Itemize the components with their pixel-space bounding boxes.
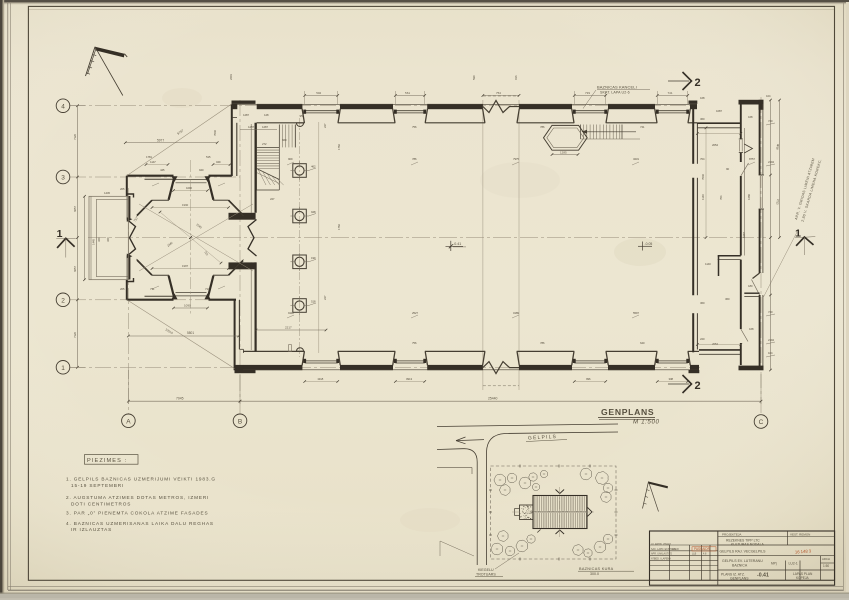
svg-text:5597: 5597 [633,311,639,315]
svg-text:740: 740 [768,310,773,314]
svg-text:PIEZIMES :: PIEZIMES : [87,458,127,464]
svg-text:SKAT. LAPA U2-6: SKAT. LAPA U2-6 [600,91,630,95]
svg-text:VEST. REMON: VEST. REMON [790,532,810,536]
svg-text:1287: 1287 [262,125,268,129]
svg-text:227: 227 [270,197,275,201]
svg-text:1987: 1987 [182,264,189,268]
svg-text:2054: 2054 [712,143,718,147]
svg-text:360: 360 [725,297,730,301]
svg-text:462: 462 [311,165,316,169]
svg-text:8757: 8757 [749,157,755,161]
svg-text:-0.05: -0.05 [645,242,653,246]
svg-text:MP): MP) [771,562,777,566]
svg-text:180: 180 [748,284,753,288]
svg-text:2601: 2601 [229,74,233,80]
svg-text:1680: 1680 [747,194,751,200]
svg-text:1318: 1318 [317,377,323,381]
svg-text:713: 713 [205,287,210,291]
svg-text:KIEGELU: KIEGELU [478,568,494,572]
svg-text:1782: 1782 [337,144,341,150]
svg-text:6057: 6057 [73,206,77,212]
svg-text:BAZNICAS KANCELI: BAZNICAS KANCELI [597,85,637,90]
svg-text:754: 754 [496,91,501,95]
svg-text:360: 360 [700,117,705,121]
svg-text:1087: 1087 [716,109,722,113]
svg-text:-0.41: -0.41 [757,573,769,579]
svg-text:BAZNICA: BAZNICA [732,563,748,567]
svg-text:1782: 1782 [337,224,341,230]
svg-text:BAZNICAS KURA: BAZNICAS KURA [579,567,614,571]
svg-text:5977: 5977 [157,139,164,143]
svg-text:1140: 1140 [705,262,711,266]
svg-text:996: 996 [586,377,591,381]
svg-text:GENPLANS: GENPLANS [601,407,654,417]
svg-text:756: 756 [412,341,417,345]
svg-text:LLB: LLB [692,553,697,556]
svg-text:3. PAR „0” PIENEMTA COKOLA ATZ: 3. PAR „0” PIENEMTA COKOLA ATZIME FASADE… [66,511,208,516]
svg-text:786: 786 [540,341,545,345]
svg-text:227: 227 [323,295,327,300]
svg-text:3231: 3231 [633,157,639,161]
svg-text:ARCH: ARCH [822,557,830,561]
svg-text:1:50: 1:50 [823,564,829,568]
svg-text:1287: 1287 [243,113,249,117]
svg-text:786: 786 [412,157,417,161]
svg-text:016: 016 [514,75,518,80]
svg-text:561: 561 [405,91,410,95]
svg-text:M 1:500: M 1:500 [633,419,660,426]
svg-text:518: 518 [311,300,316,304]
svg-text:4. BAZNICAS UZMERISANAS LAIKA: 4. BAZNICAS UZMERISANAS LAIKA DALU REGHA… [66,521,214,526]
svg-text:GELPILS EV. LUTERANU: GELPILS EV. LUTERANU [722,559,763,563]
svg-text:LV. ARHIV. ZINAM: LV. ARHIV. ZINAM [651,543,671,546]
svg-text:168: 168 [700,96,705,100]
svg-text:TROTUARS: TROTUARS [476,573,496,577]
svg-text:2527: 2527 [412,311,418,315]
svg-text:168: 168 [748,115,753,119]
svg-text:5801: 5801 [187,331,194,335]
svg-text:1. GELPILS BAZNICAS UZMERIJUMI: 1. GELPILS BAZNICAS UZMERIJUMI VEIKTI 19… [66,477,216,482]
svg-text:199: 199 [311,256,316,260]
svg-text:360: 360 [700,301,705,305]
svg-text:C: C [759,419,764,426]
svg-text:704: 704 [700,157,705,161]
svg-text:3: 3 [61,175,65,182]
svg-text:7040: 7040 [213,130,217,136]
svg-text:2: 2 [694,77,700,89]
svg-text:KOPEJA: KOPEJA [796,576,809,580]
svg-text:7045: 7045 [176,397,184,401]
svg-text:756: 756 [412,125,417,129]
svg-text:7120: 7120 [73,134,77,140]
svg-text:6057: 6057 [73,266,77,272]
svg-text:445: 445 [160,168,165,172]
svg-text:308: 308 [669,377,674,381]
svg-text:1445: 1445 [104,191,110,195]
svg-text:049: 049 [216,160,221,164]
svg-text:LU2-1: LU2-1 [789,562,798,566]
svg-text:2: 2 [694,380,700,392]
svg-text:1090: 1090 [184,304,191,308]
svg-text:227: 227 [323,123,327,128]
svg-text:DOTI CENTIMETROS: DOTI CENTIMETROS [71,501,131,506]
svg-text:A: A [126,418,131,425]
svg-text:741: 741 [640,125,645,129]
svg-text:2217: 2217 [285,326,292,330]
svg-text:1781: 1781 [146,155,152,159]
svg-text:1285: 1285 [560,151,567,155]
svg-text:2194: 2194 [768,160,774,164]
svg-text:1140: 1140 [701,194,705,200]
svg-text:-0.41: -0.41 [453,242,461,246]
svg-text:740: 740 [768,119,773,123]
svg-text:128: 128 [264,113,269,117]
svg-text:739: 739 [585,91,590,95]
svg-text:CAUR: CAUR [672,548,679,551]
svg-text:104: 104 [766,94,771,98]
svg-text:205: 205 [120,287,125,291]
svg-text:104: 104 [768,351,773,355]
svg-text:1090: 1090 [186,186,192,190]
svg-text:948: 948 [311,210,316,214]
svg-text:2194: 2194 [768,338,774,342]
svg-text:4: 4 [61,103,65,110]
svg-text:640: 640 [640,341,645,345]
svg-text:704: 704 [719,195,723,200]
svg-text:1445: 1445 [92,239,96,245]
svg-text:660: 660 [282,138,287,142]
svg-text:KULTURAS NODALA: KULTURAS NODALA [731,542,764,546]
svg-text:360: 360 [106,237,110,242]
svg-text:ATBED. I.LAPENA: ATBED. I.LAPENA [651,558,671,561]
svg-text:25440: 25440 [488,397,498,401]
svg-text:2: 2 [61,297,65,304]
svg-text:IR IZLAUZTAS: IR IZLAUZTAS [71,527,112,532]
svg-text:GELPILS RAJ. VECGELPILS: GELPILS RAJ. VECGELPILS [720,550,767,554]
svg-text:1087: 1087 [742,232,746,238]
svg-text:PROJEKTEJA: PROJEKTEJA [722,532,741,536]
svg-text:940: 940 [199,168,204,172]
svg-text:1990: 1990 [182,203,189,207]
svg-text:0913: 0913 [406,377,412,381]
svg-text:GENPLANS: GENPLANS [730,577,749,581]
svg-text:1287: 1287 [248,125,254,129]
svg-text:515: 515 [206,155,211,159]
svg-text:205: 205 [120,187,125,191]
svg-text:APR. UAKLAUTITD: APR. UAKLAUTITD [651,553,672,556]
svg-text:272: 272 [262,142,267,146]
svg-text:1147: 1147 [150,160,156,164]
svg-text:741: 741 [668,91,673,95]
svg-text:15-19 SEPTEMBRI: 15-19 SEPTEMBRI [71,483,124,488]
svg-text:786: 786 [540,125,545,129]
svg-text:502: 502 [316,91,321,95]
svg-text:590: 590 [472,75,476,80]
svg-text:7975: 7975 [513,157,519,161]
svg-text:9118: 9118 [288,311,294,315]
svg-text:7120: 7120 [73,332,77,338]
svg-text:909: 909 [288,157,293,161]
svg-text:300.0: 300.0 [590,572,599,576]
svg-text:168: 168 [749,327,754,331]
svg-text:360: 360 [97,237,101,242]
svg-text:2. AUGSTUMA ATZIMES DOTAS METR: 2. AUGSTUMA ATZIMES DOTAS METROS, IZMERI [66,495,209,500]
svg-text:PASKAIDR.: PASKAIDR. [694,547,711,551]
svg-text:7040: 7040 [701,174,705,180]
svg-text:1: 1 [61,365,65,372]
svg-text:B: B [238,418,242,425]
svg-text:0189: 0189 [513,311,519,315]
svg-text:2054: 2054 [712,342,718,346]
svg-text:220: 220 [700,337,705,341]
